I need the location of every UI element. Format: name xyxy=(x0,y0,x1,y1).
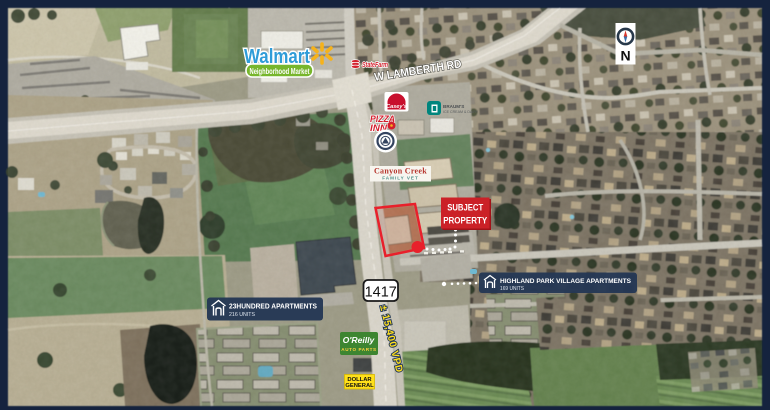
svg-text:PROPERTY: PROPERTY xyxy=(443,216,487,227)
svg-text:HIGHLAND PARK VILLAGE APARTMEN: HIGHLAND PARK VILLAGE APARTMENTS xyxy=(500,278,631,285)
svg-text:GENERAL: GENERAL xyxy=(345,383,374,389)
svg-text:169 UNITS: 169 UNITS xyxy=(500,286,525,292)
svg-text:Canyon Creek: Canyon Creek xyxy=(374,167,427,176)
svg-text:Casey's: Casey's xyxy=(386,104,407,110)
svg-text:AUTO PARTS: AUTO PARTS xyxy=(341,347,376,352)
svg-text:StateFarm: StateFarm xyxy=(362,60,388,69)
svg-text:ICE CREAM & DAIRY: ICE CREAM & DAIRY xyxy=(443,110,479,114)
svg-text:216 UNITS: 216 UNITS xyxy=(229,312,256,318)
svg-text:23HUNDRED APARTMENTS: 23HUNDRED APARTMENTS xyxy=(229,302,317,311)
svg-text:Neighborhood Market: Neighborhood Market xyxy=(250,67,310,76)
svg-text:BRAUM'S: BRAUM'S xyxy=(443,104,464,109)
svg-text:FAMILY VET: FAMILY VET xyxy=(382,176,419,181)
svg-text:DOLLAR: DOLLAR xyxy=(347,377,372,383)
svg-text:SUBJECT: SUBJECT xyxy=(447,203,483,214)
svg-text:1417: 1417 xyxy=(365,285,397,301)
svg-text:N: N xyxy=(620,48,630,64)
svg-text:O'Reilly: O'Reilly xyxy=(343,335,376,345)
